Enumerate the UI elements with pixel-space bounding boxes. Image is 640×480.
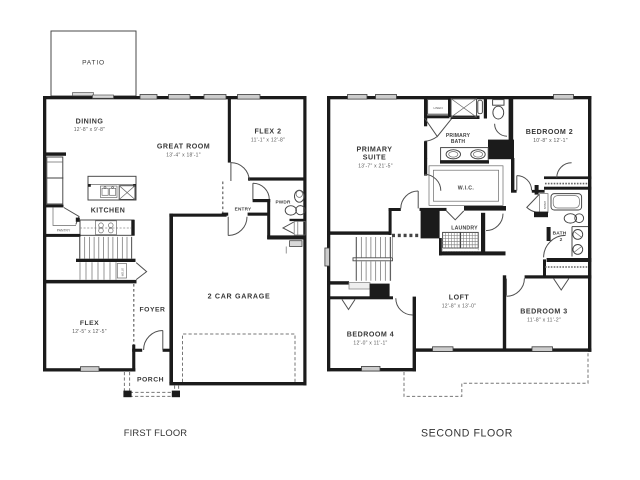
- svg-text:BEDROOM 4: BEDROOM 4: [347, 331, 394, 339]
- svg-text:BATH: BATH: [451, 139, 466, 145]
- svg-text:2 CAR GARAGE: 2 CAR GARAGE: [208, 293, 271, 301]
- svg-text:PATIO: PATIO: [82, 60, 105, 67]
- svg-text:BEDROOM 3: BEDROOM 3: [520, 308, 567, 316]
- svg-text:10'-8" x 12'-1": 10'-8" x 12'-1": [533, 138, 568, 144]
- svg-text:FLEX 2: FLEX 2: [254, 128, 281, 136]
- svg-text:FLEX: FLEX: [80, 320, 99, 327]
- svg-text:BEDROOM 2: BEDROOM 2: [526, 128, 573, 136]
- svg-text:13'-7" x 21'-5": 13'-7" x 21'-5": [358, 164, 393, 170]
- svg-text:11'-1" x 12'-8": 11'-1" x 12'-8": [251, 138, 285, 144]
- svg-text:STOR: STOR: [121, 268, 125, 277]
- svg-text:11'-8" x 11'-2": 11'-8" x 11'-2": [527, 318, 561, 324]
- svg-text:PWDR: PWDR: [275, 199, 291, 204]
- svg-text:12'-0" x 11'-1": 12'-0" x 11'-1": [353, 341, 387, 347]
- svg-text:LOFT: LOFT: [449, 294, 470, 302]
- svg-text:FIRST FLOOR: FIRST FLOOR: [124, 427, 188, 438]
- svg-text:12'-5" x 12'-5": 12'-5" x 12'-5": [72, 329, 107, 335]
- svg-text:SUITE: SUITE: [363, 154, 386, 162]
- svg-text:LINEN: LINEN: [543, 201, 547, 210]
- svg-text:12'-8" x 13'-0": 12'-8" x 13'-0": [442, 304, 477, 310]
- svg-text:GREAT ROOM: GREAT ROOM: [157, 143, 210, 151]
- svg-text:SECOND FLOOR: SECOND FLOOR: [421, 428, 513, 440]
- svg-text:12'-8" x 9'-8": 12'-8" x 9'-8": [74, 127, 105, 133]
- svg-text:ENTRY: ENTRY: [235, 206, 252, 211]
- svg-text:PORCH: PORCH: [137, 377, 164, 384]
- svg-text:2: 2: [560, 237, 563, 243]
- svg-text:LINEN: LINEN: [433, 106, 442, 110]
- svg-text:DINING: DINING: [76, 118, 104, 126]
- svg-text:PRIMARY: PRIMARY: [357, 146, 393, 154]
- svg-text:KITCHEN: KITCHEN: [91, 208, 126, 215]
- svg-text:13'-4" x 18'-1": 13'-4" x 18'-1": [166, 153, 201, 159]
- svg-text:W.I.C.: W.I.C.: [458, 186, 475, 192]
- svg-text:FOYER: FOYER: [140, 307, 166, 314]
- svg-text:LAUNDRY: LAUNDRY: [451, 226, 478, 232]
- svg-text:PANTRY: PANTRY: [57, 229, 71, 233]
